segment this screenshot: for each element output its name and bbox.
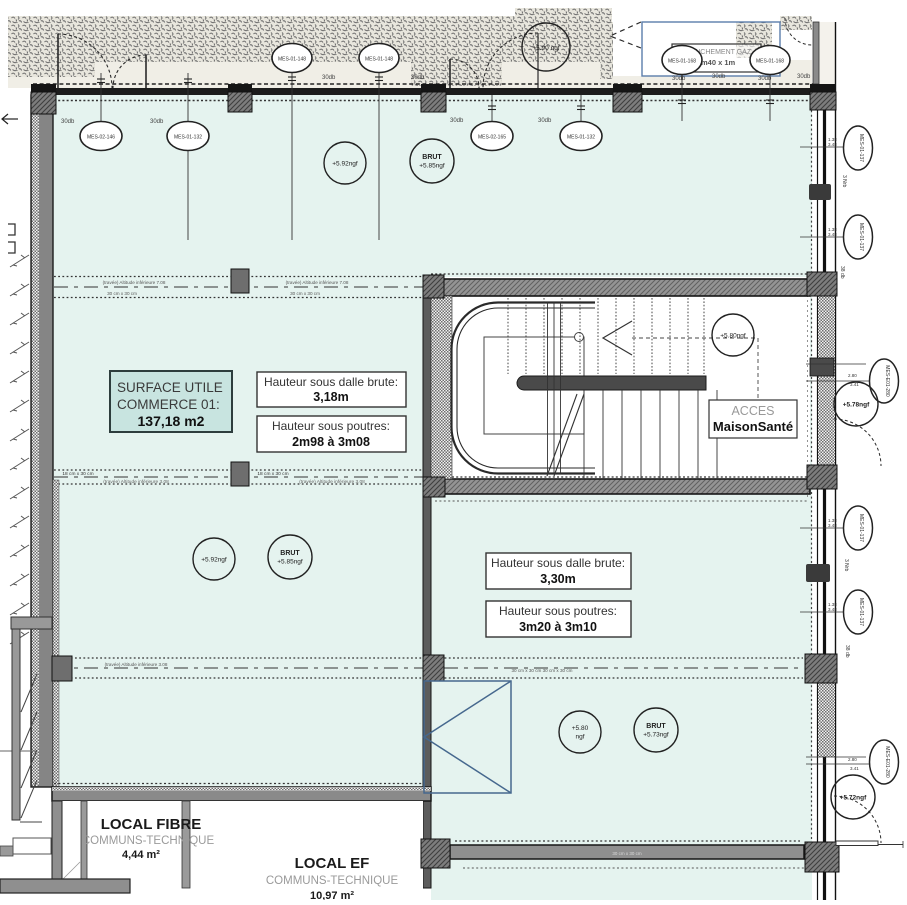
svg-text:30db: 30db — [797, 74, 811, 80]
svg-text:Hauteur sous dalle brute:: Hauteur sous dalle brute: — [264, 375, 398, 389]
svg-text:(travée) Altitude inférieure 3: (travée) Altitude inférieure 3.08 — [299, 479, 365, 485]
svg-text:Hauteur sous poutres:: Hauteur sous poutres: — [272, 419, 390, 433]
svg-text:3,18m: 3,18m — [313, 390, 348, 404]
svg-text:38 db: 38 db — [839, 266, 845, 279]
svg-text:COMMUNS-TECHNIQUE: COMMUNS-TECHNIQUE — [266, 875, 399, 887]
svg-text:+5.73ngf: +5.73ngf — [643, 732, 669, 739]
svg-text:Hauteur sous poutres:: Hauteur sous poutres: — [499, 604, 617, 618]
svg-text:MES-02-146: MES-02-146 — [87, 135, 115, 141]
svg-text:4,44 m²: 4,44 m² — [122, 849, 160, 861]
svg-text:30 cm x 30 cm: 30 cm x 30 cm — [290, 291, 320, 296]
svg-text:2.80: 2.80 — [848, 373, 857, 378]
svg-text:+5.85ngf: +5.85ngf — [277, 559, 303, 566]
svg-text:ngf: ngf — [575, 734, 584, 741]
svg-text:18 cm x 30 cm: 18 cm x 30 cm — [62, 471, 93, 477]
svg-text:BRUT: BRUT — [422, 154, 442, 161]
svg-text:30 cm x 30 cm: 30 cm x 30 cm — [612, 851, 642, 856]
svg-text:BRUT: BRUT — [280, 550, 300, 557]
svg-text:SURFACE UTILE: SURFACE UTILE — [117, 380, 223, 395]
svg-text:18 cm x 30 cm: 18 cm x 30 cm — [257, 471, 288, 477]
svg-text:+5.72ngf: +5.72ngf — [840, 795, 867, 802]
svg-text:MES-01-137: MES-01-137 — [858, 514, 864, 542]
svg-text:3.48: 3.48 — [828, 142, 837, 147]
svg-text:3.41: 3.41 — [850, 766, 859, 771]
svg-text:LOCAL FIBRE: LOCAL FIBRE — [101, 816, 202, 833]
svg-text:MES-E01-280: MES-E01-280 — [884, 746, 890, 778]
svg-text:+5.80: +5.80 — [572, 725, 589, 732]
svg-text:MES-01-137: MES-01-137 — [858, 223, 864, 251]
svg-text:(travée) Altitude inférieure 3: (travée) Altitude inférieure 3.08 — [103, 479, 169, 485]
svg-text:30db: 30db — [61, 119, 75, 125]
svg-text:(travée) Altitude inférieure 7: (travée) Altitude inférieure 7.08 — [103, 280, 166, 285]
svg-text:MES-02-165: MES-02-165 — [478, 135, 506, 141]
svg-text:+5.92ngf: +5.92ngf — [201, 557, 227, 564]
svg-text:30db: 30db — [712, 74, 726, 80]
svg-text:MES-01-132: MES-01-132 — [174, 135, 202, 141]
svg-text:38 db: 38 db — [844, 645, 850, 658]
svg-text:30 cm x 30 cm 30 cm x 30 cm: 30 cm x 30 cm 30 cm x 30 cm — [511, 668, 572, 673]
svg-text:ACCES: ACCES — [731, 404, 774, 418]
svg-text:MES-01-148: MES-01-148 — [365, 57, 393, 63]
svg-text:(travée) Altitude inférieure 7: (travée) Altitude inférieure 7.08 — [286, 280, 349, 285]
svg-text:COMMERCE 01:: COMMERCE 01: — [117, 397, 220, 412]
svg-text:MES-01-148: MES-01-148 — [278, 57, 306, 63]
svg-text:3.48: 3.48 — [828, 232, 837, 237]
svg-text:+5.92ngf: +5.92ngf — [332, 161, 358, 168]
svg-text:Hauteur sous dalle brute:: Hauteur sous dalle brute: — [491, 556, 625, 570]
svg-text:MES-01-137: MES-01-137 — [858, 598, 864, 626]
svg-text:MES-01-168: MES-01-168 — [668, 59, 696, 65]
svg-text:(travée) Altitude inférieure 3: (travée) Altitude inférieure 3.08 — [105, 662, 168, 667]
svg-text:BRUT: BRUT — [646, 723, 666, 730]
svg-text:2.80: 2.80 — [848, 757, 857, 762]
svg-text:3m20 à 3m10: 3m20 à 3m10 — [519, 620, 597, 634]
svg-text:10,97 m²: 10,97 m² — [310, 890, 354, 900]
svg-text:2m98 à 3m08: 2m98 à 3m08 — [292, 435, 370, 449]
svg-text:MaisonSanté: MaisonSanté — [713, 419, 793, 434]
svg-text:30db: 30db — [538, 118, 552, 124]
svg-text:+5.78ngf: +5.78ngf — [843, 402, 870, 409]
svg-text:MES-01-137: MES-01-137 — [858, 134, 864, 162]
svg-text:3,30m: 3,30m — [540, 572, 575, 586]
svg-text:COMMUNS-TECHNIQUE: COMMUNS-TECHNIQUE — [82, 835, 215, 847]
svg-text:LOCAL EF: LOCAL EF — [295, 855, 370, 872]
svg-text:3.48: 3.48 — [828, 607, 837, 612]
svg-text:+5.80ngf: +5.80ngf — [720, 333, 746, 340]
svg-text:30db: 30db — [322, 75, 336, 81]
svg-text:+5.85ngf: +5.85ngf — [419, 163, 445, 170]
svg-text:30db: 30db — [411, 75, 425, 81]
svg-text:3 Nrb: 3 Nrb — [843, 559, 849, 571]
svg-text:30 cm x 30 cm: 30 cm x 30 cm — [107, 291, 137, 296]
svg-text:+5.90 ngf: +5.90 ngf — [532, 45, 559, 52]
svg-text:3 Nrb: 3 Nrb — [841, 175, 847, 187]
svg-text:MES-E01-280: MES-E01-280 — [884, 365, 890, 397]
svg-text:3.48: 3.48 — [828, 523, 837, 528]
svg-text:MES-01-132: MES-01-132 — [567, 135, 595, 141]
svg-text:30db: 30db — [150, 119, 164, 125]
svg-text:137,18 m2: 137,18 m2 — [138, 413, 205, 429]
svg-text:30db: 30db — [672, 76, 686, 82]
svg-text:MES-01-168: MES-01-168 — [756, 59, 784, 65]
svg-text:30db: 30db — [758, 76, 772, 82]
svg-text:30db: 30db — [450, 118, 464, 124]
